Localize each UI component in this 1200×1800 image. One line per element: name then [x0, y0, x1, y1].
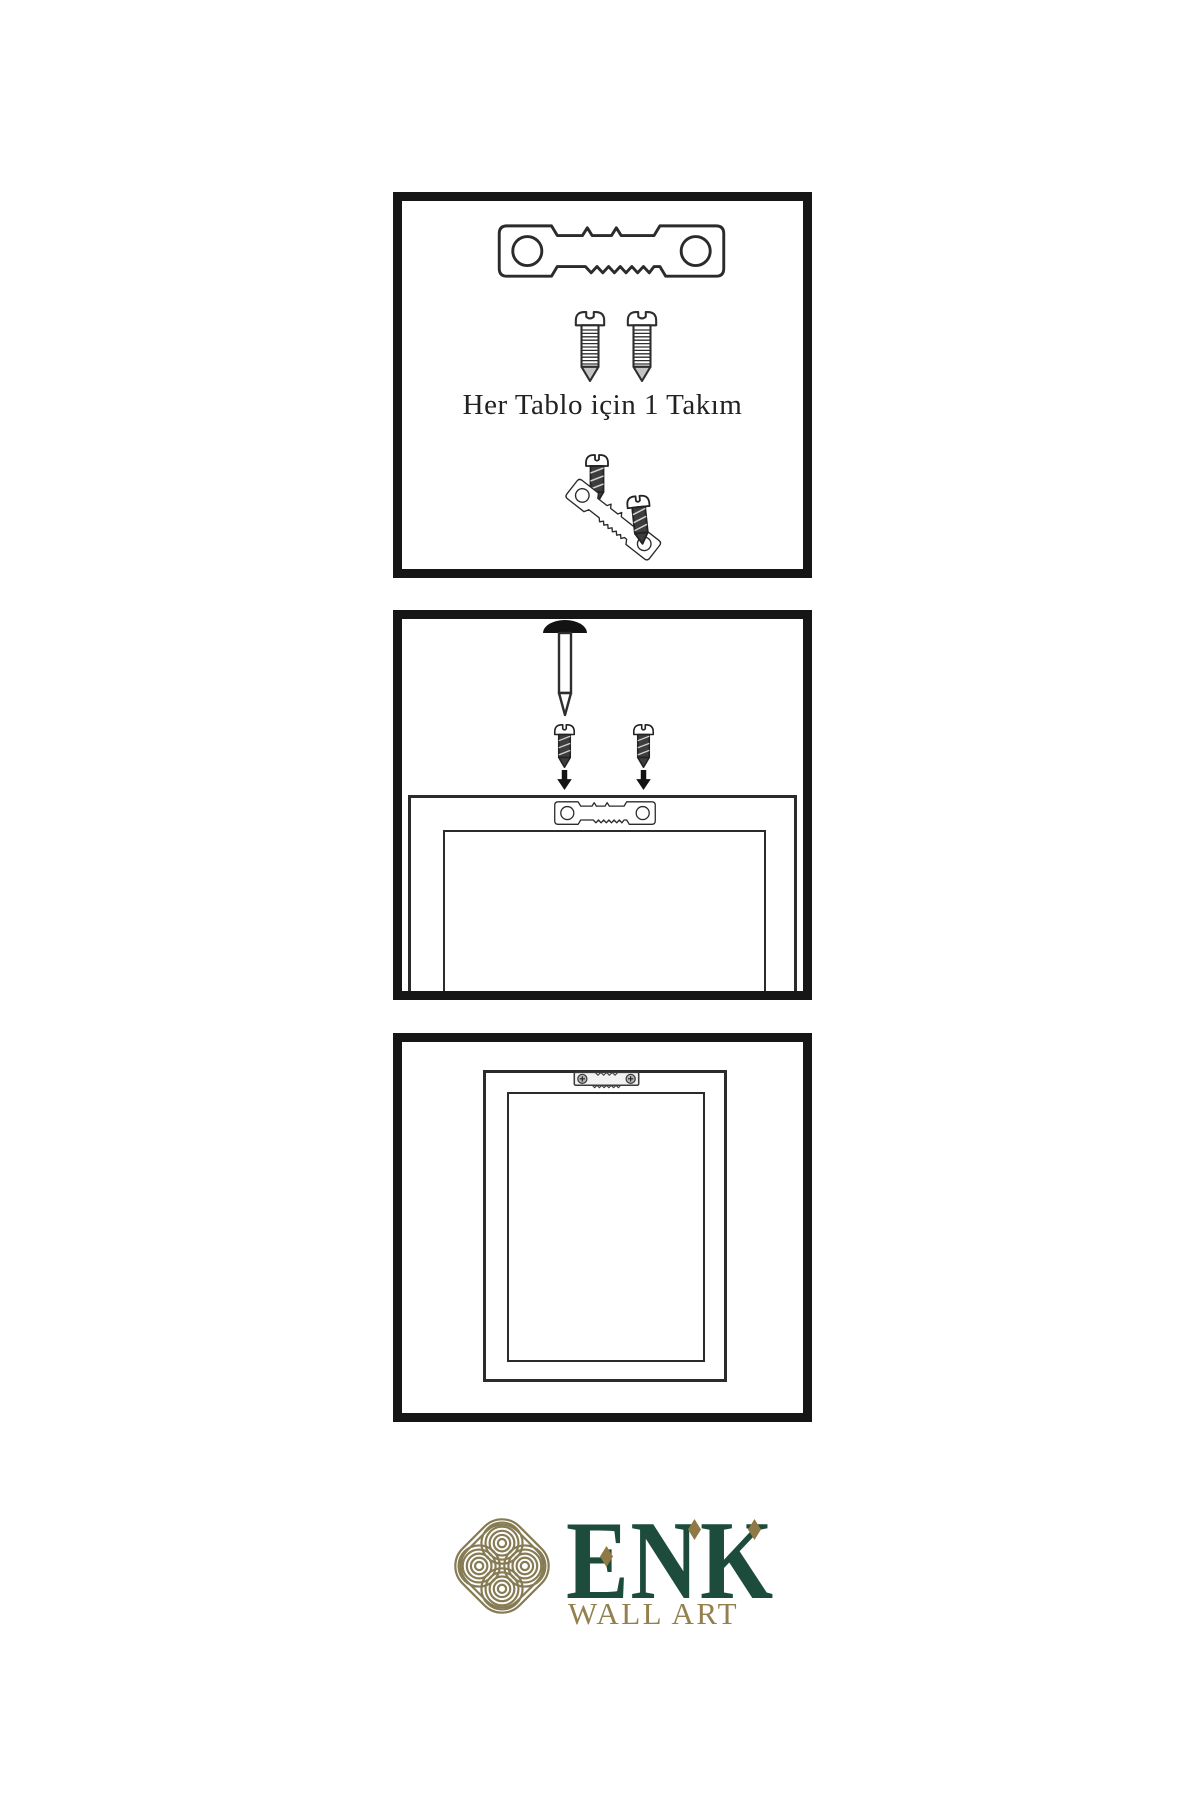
hardware-kit-panel: Her Tablo için 1 Takım: [393, 192, 812, 578]
sawtooth-hanger-icon: [494, 222, 729, 282]
knot-logo-icon: [438, 1496, 566, 1636]
dark-screw-icon: [552, 723, 577, 769]
mounted-hanger-icon: [573, 1071, 640, 1089]
nail-icon: [542, 619, 588, 719]
kit-caption: Her Tablo için 1 Takım: [402, 389, 803, 422]
instruction-sheet: Her Tablo için 1 Takım: [0, 0, 1200, 1800]
screw-icon: [625, 307, 659, 387]
screw-icon: [573, 307, 607, 387]
brand-subtitle: WALL ART: [568, 1596, 739, 1632]
dark-screw-icon: [624, 493, 655, 547]
arrow-down-icon: [557, 770, 572, 790]
wall-mounting-panel: [393, 610, 812, 1000]
sawtooth-hanger-icon: [553, 800, 657, 827]
dark-screw-icon: [631, 723, 656, 769]
frame-back-inner-edge: [443, 830, 766, 1000]
picture-frame-inner: [507, 1092, 705, 1362]
hung-frame-panel: [393, 1033, 812, 1422]
arrow-down-icon: [636, 770, 651, 790]
